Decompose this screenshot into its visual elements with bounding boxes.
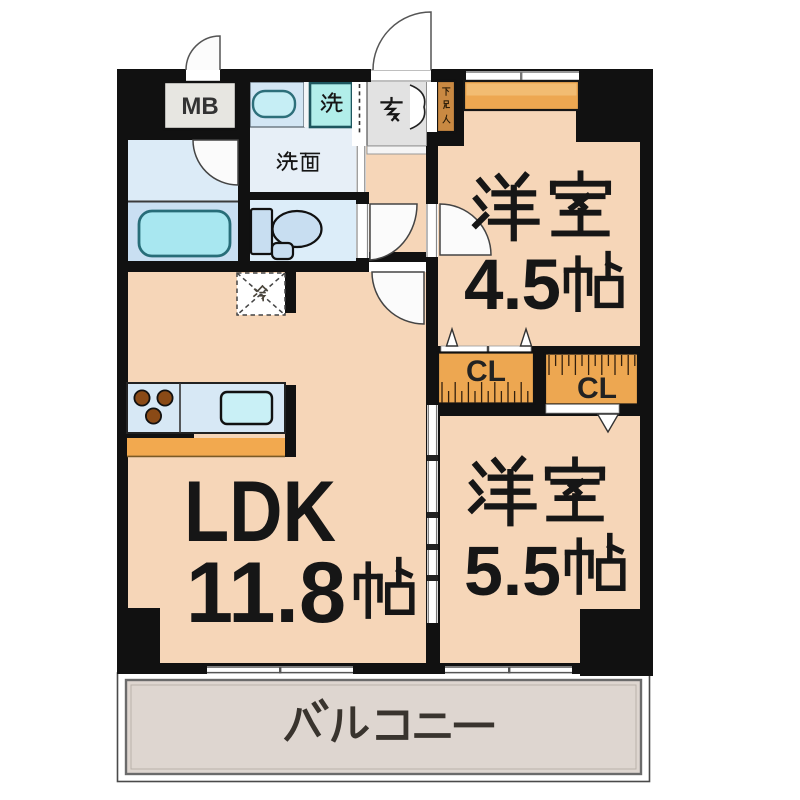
svg-text:11.8: 11.8 [186,545,346,641]
svg-text:4.5: 4.5 [464,246,561,325]
svg-text:CL: CL [466,355,506,388]
svg-text:CL: CL [577,372,617,405]
svg-text:MB: MB [181,93,218,120]
svg-text:5.5: 5.5 [464,532,561,610]
